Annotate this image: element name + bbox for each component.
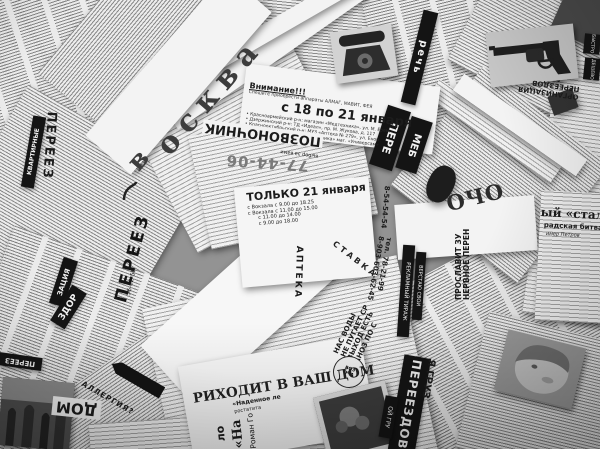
newspaper-collage-photo: речь ПЕРЕ МЕБ КВАРТИРНЫЕ ЗАЦИЯ ЗДОР РЕКЛ… [0, 0, 600, 449]
deshevo-label: ДЕШЕВО [588, 58, 595, 79]
proslavit-block: ПРОСЛАВИТ ЗУ НЕРВНОЕ ПЕРЕН [455, 229, 472, 300]
tel-right-vertical: 8-54-54-54 [379, 185, 390, 228]
telephone-photo [330, 24, 399, 84]
nervnoe-label: НЕРВНОЕ ПЕРЕН [463, 229, 471, 300]
lo-vertical: ло [214, 425, 228, 442]
flower-photo-icon [319, 389, 383, 449]
bystro-label: БЫСТРО [589, 34, 596, 54]
na-quote-vertical: «На [230, 419, 247, 449]
telephone-icon [330, 24, 399, 84]
reklamny-label: РЕКЛАМНЫЙ ТИРАЖ [401, 262, 411, 321]
verstayu-label: ВЕРСТАЮ СВОИ [415, 265, 424, 306]
apteka-vertical: АПТЕКА [291, 246, 303, 299]
pereez-bottom-label: ПЕРЕЕЗ [4, 355, 35, 367]
oj-gruz-label: ОЙ ГРУ [383, 406, 394, 429]
deshevo-badge: ДЕШЕВО [583, 57, 600, 81]
bystro-badge: БЫСТРО [583, 33, 600, 55]
hook-mark [120, 180, 140, 202]
